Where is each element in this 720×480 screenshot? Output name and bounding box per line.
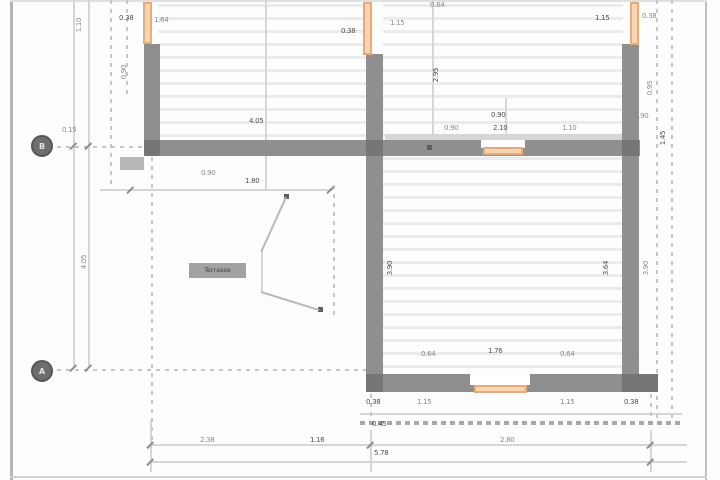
dimension-label: 2.38 xyxy=(200,436,214,444)
dimension-label: 0.90 xyxy=(491,111,505,119)
axis-letter: B xyxy=(39,142,45,151)
wall-junction xyxy=(366,140,383,156)
dimension-line xyxy=(265,0,267,190)
axis-dash-line xyxy=(110,0,112,190)
wall xyxy=(144,140,640,156)
dimension-line xyxy=(73,0,75,368)
dimension-label: 1.16 xyxy=(310,436,324,444)
dimension-label: 1.10 xyxy=(562,124,576,132)
dimension-line xyxy=(150,461,687,463)
dimension-label: 1.45 xyxy=(659,131,667,145)
dimension-label: 1.80 xyxy=(245,177,259,185)
dimension-label: 2.10 xyxy=(493,124,507,132)
dimension-line xyxy=(360,413,682,415)
dimension-label: 3.90 xyxy=(642,261,650,275)
dimension-label: 1.15 xyxy=(560,398,574,406)
axis-dash-line xyxy=(151,157,153,442)
dimension-label: 1.64 xyxy=(154,16,168,24)
dimension-label: 0.15 xyxy=(62,126,76,134)
dimension-label: 0.90 xyxy=(201,169,215,177)
dimension-label: 0.90 xyxy=(444,124,458,132)
dimension-tick xyxy=(69,364,76,371)
wall-junction xyxy=(622,140,639,156)
dimension-line xyxy=(370,430,372,472)
dimension-label: 1.15 xyxy=(417,398,431,406)
wall xyxy=(366,54,383,392)
dimension-label: 1.15 xyxy=(390,19,404,27)
leader-label: Terrasse xyxy=(189,263,246,278)
axis-bubble-b: B xyxy=(31,135,53,157)
axis-dash-line xyxy=(333,185,335,315)
dimension-label: 0.38 xyxy=(623,350,637,358)
dimension-label: 0.64 xyxy=(560,350,574,358)
dimension-label: 4.05 xyxy=(80,255,88,269)
axis-dash-line xyxy=(360,421,680,425)
dimension-line xyxy=(261,248,263,293)
wall-junction xyxy=(144,140,160,156)
axis-dash-line xyxy=(671,0,673,418)
dimension-label: 0.38 xyxy=(341,27,355,35)
dimension-line xyxy=(100,189,333,191)
leader-dot xyxy=(427,145,432,150)
dimension-tick xyxy=(84,364,91,371)
dimension-label: 0.90 xyxy=(634,112,648,120)
window-marker xyxy=(363,2,372,55)
room-hatch xyxy=(383,157,623,375)
dimension-label: 4.05 xyxy=(249,117,263,125)
dimension-label: 0.38 xyxy=(624,398,638,406)
wall-opening xyxy=(470,374,530,385)
dimension-label: 0.38 xyxy=(642,12,656,20)
dimension-line xyxy=(88,0,90,368)
wall-pier xyxy=(120,157,144,170)
window-marker xyxy=(474,385,527,393)
dimension-label: 0.64 xyxy=(430,1,444,9)
dimension-line xyxy=(150,444,687,446)
dimension-label: 1.10 xyxy=(75,18,83,32)
axis-letter: A xyxy=(39,367,45,376)
dimension-label: 0.95 xyxy=(646,81,654,95)
wall-junction xyxy=(366,374,383,392)
dimension-label: 2.95 xyxy=(432,68,440,82)
wall-junction xyxy=(622,374,658,392)
dimension-label: 0.64 xyxy=(421,350,435,358)
floor-plan-canvas: 0.381.640.381.150.641.150.380.151.104.05… xyxy=(0,0,720,480)
dimension-label: 1.76 xyxy=(488,347,502,355)
dimension-label: 0.45 xyxy=(372,420,386,428)
wall xyxy=(622,44,639,392)
dimension-label: 3.64 xyxy=(602,261,610,275)
window-marker xyxy=(630,2,639,45)
plan-layer: 0.381.640.381.150.641.150.380.151.104.05… xyxy=(0,0,720,480)
room-hatch xyxy=(383,4,623,141)
axis-bubble-a: A xyxy=(31,360,53,382)
window-marker xyxy=(143,2,152,44)
dimension-label: 0.90 xyxy=(120,65,128,79)
dimension-label: 2.80 xyxy=(500,436,514,444)
dimension-label: 3.90 xyxy=(386,261,394,275)
axis-dash-line xyxy=(656,0,658,418)
dimension-label: 5.78 xyxy=(374,449,388,457)
dimension-label: 1.15 xyxy=(595,14,609,22)
dimension-label: 0.38 xyxy=(366,398,380,406)
axis-dash-line xyxy=(57,369,367,371)
dimension-line xyxy=(650,430,652,472)
window-marker xyxy=(483,147,523,155)
dimension-label: 0.38 xyxy=(119,14,133,22)
